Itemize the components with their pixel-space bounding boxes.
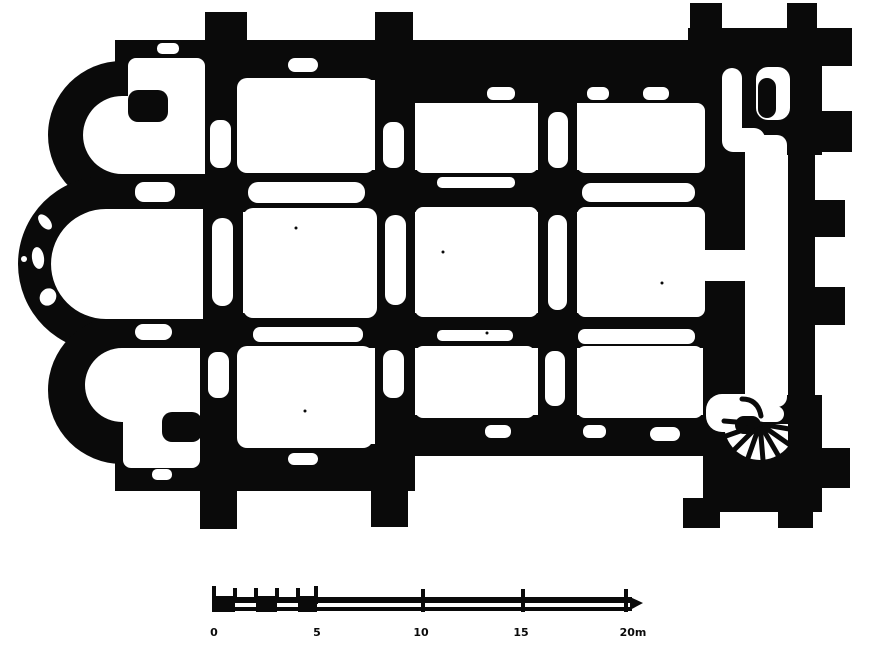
narthex-corridor <box>745 135 787 407</box>
northeast-tower-buttress <box>690 3 722 31</box>
doorway-slot <box>385 215 406 305</box>
scale-label: 15 <box>513 626 528 639</box>
arcade-opening <box>253 327 363 342</box>
arcade-opening <box>135 324 172 340</box>
south-aisle-bay <box>237 346 373 448</box>
southwest-chamber-passage <box>123 410 163 438</box>
scale-bar-tick <box>624 589 628 612</box>
scale-label: 10 <box>413 626 429 639</box>
east-buttress <box>815 448 850 488</box>
northwest-chamber-passage <box>168 88 204 114</box>
scan-speckle <box>574 119 577 122</box>
scale-bar-tick <box>212 586 216 612</box>
southwest-chamber-pier <box>162 412 202 442</box>
northwest-chamber-pier <box>128 90 168 122</box>
scan-speckle <box>304 410 307 413</box>
stair-step-line <box>724 421 760 424</box>
narthex-west-wall-lower <box>703 280 749 410</box>
northeast-stair-newel <box>758 78 776 118</box>
north-aisle-bay <box>237 78 375 173</box>
scale-bar-tick <box>521 589 525 612</box>
window-slit <box>650 427 680 441</box>
scale-bar-tick <box>275 588 279 600</box>
arcade-opening <box>248 182 365 203</box>
scale-bar-tick <box>233 588 237 600</box>
southeast-tower-buttress <box>683 498 720 528</box>
window-slit <box>288 58 318 72</box>
south-aisle-bay <box>577 346 703 418</box>
east-buttress <box>812 287 845 325</box>
scale-label: 5 <box>313 626 321 639</box>
scan-speckle <box>486 332 489 335</box>
east-wall-facing <box>788 380 815 480</box>
southeast-tower-buttress <box>778 498 813 528</box>
doorway-slot <box>383 350 404 398</box>
doorway-slot <box>212 218 233 306</box>
north-aisle-bay <box>577 103 705 173</box>
doorway-slot <box>208 352 229 398</box>
scan-speckle <box>295 227 298 230</box>
nave-bay <box>577 207 705 317</box>
central-apse <box>51 209 203 319</box>
window-slit <box>157 43 179 54</box>
north-aisle-bay <box>415 103 538 173</box>
scale-label: 0 <box>210 626 218 639</box>
scan-speckle <box>442 251 445 254</box>
nave-entrance-doorway <box>700 250 750 281</box>
window-slit <box>587 87 609 100</box>
window-slit <box>152 469 172 480</box>
south-buttress <box>371 478 408 527</box>
scale-bar-tick <box>421 589 425 612</box>
window-slit <box>643 87 669 100</box>
east-buttress <box>815 111 852 152</box>
north-buttress <box>375 12 413 44</box>
east-buttress <box>812 200 845 237</box>
apse-window-slit <box>21 256 27 262</box>
east-buttress <box>815 28 852 66</box>
window-slit <box>583 425 606 438</box>
window-slit <box>288 453 318 465</box>
scale-bar-tick <box>314 586 318 604</box>
scale-bar-segment <box>256 596 277 612</box>
south-buttress <box>200 478 237 529</box>
scale-bar-tick <box>254 588 258 600</box>
window-slit <box>485 425 511 438</box>
north-buttress <box>205 12 247 44</box>
floor-plan-figure: 0 5 10 15 20m <box>0 0 869 666</box>
south-aisle-bay <box>415 346 535 418</box>
scale-label: 20m <box>620 626 647 639</box>
doorway-slot <box>548 215 567 310</box>
arcade-opening <box>135 182 175 202</box>
arcade-opening <box>578 329 695 344</box>
doorway-slot <box>548 112 568 168</box>
nave-bay <box>415 207 538 317</box>
scan-speckle <box>661 282 664 285</box>
arcade-opening <box>582 183 695 202</box>
scale-bar-end-arrow <box>630 597 643 610</box>
doorway-slot <box>210 120 231 168</box>
doorway-slot <box>383 122 404 168</box>
nave-bay <box>243 208 377 318</box>
arcade-opening <box>437 177 515 188</box>
northeast-tower-buttress <box>787 3 817 31</box>
window-slit <box>487 87 515 100</box>
scale-bar-tick <box>296 588 300 600</box>
scale-bar-segment <box>214 596 235 612</box>
arcade-opening <box>437 330 513 341</box>
church-floor-plan: 0 5 10 15 20m <box>0 0 869 666</box>
scale-bar: 0 5 10 15 20m <box>210 586 646 639</box>
doorway-slot <box>545 351 565 406</box>
